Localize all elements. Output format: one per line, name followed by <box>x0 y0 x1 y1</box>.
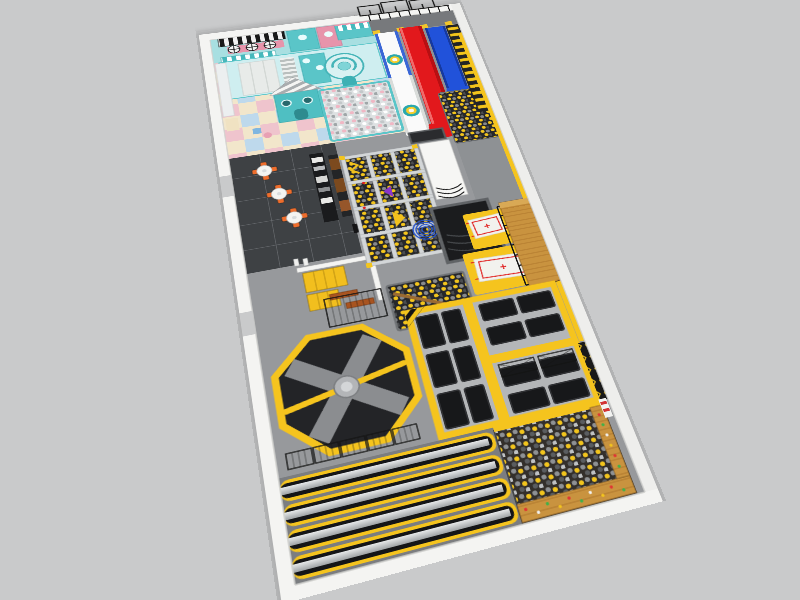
kids-ball-pit <box>319 81 404 141</box>
soft-pad <box>225 118 239 132</box>
park-floorplan <box>210 10 645 585</box>
wide-slide <box>238 59 281 95</box>
render-canvas <box>0 0 800 600</box>
